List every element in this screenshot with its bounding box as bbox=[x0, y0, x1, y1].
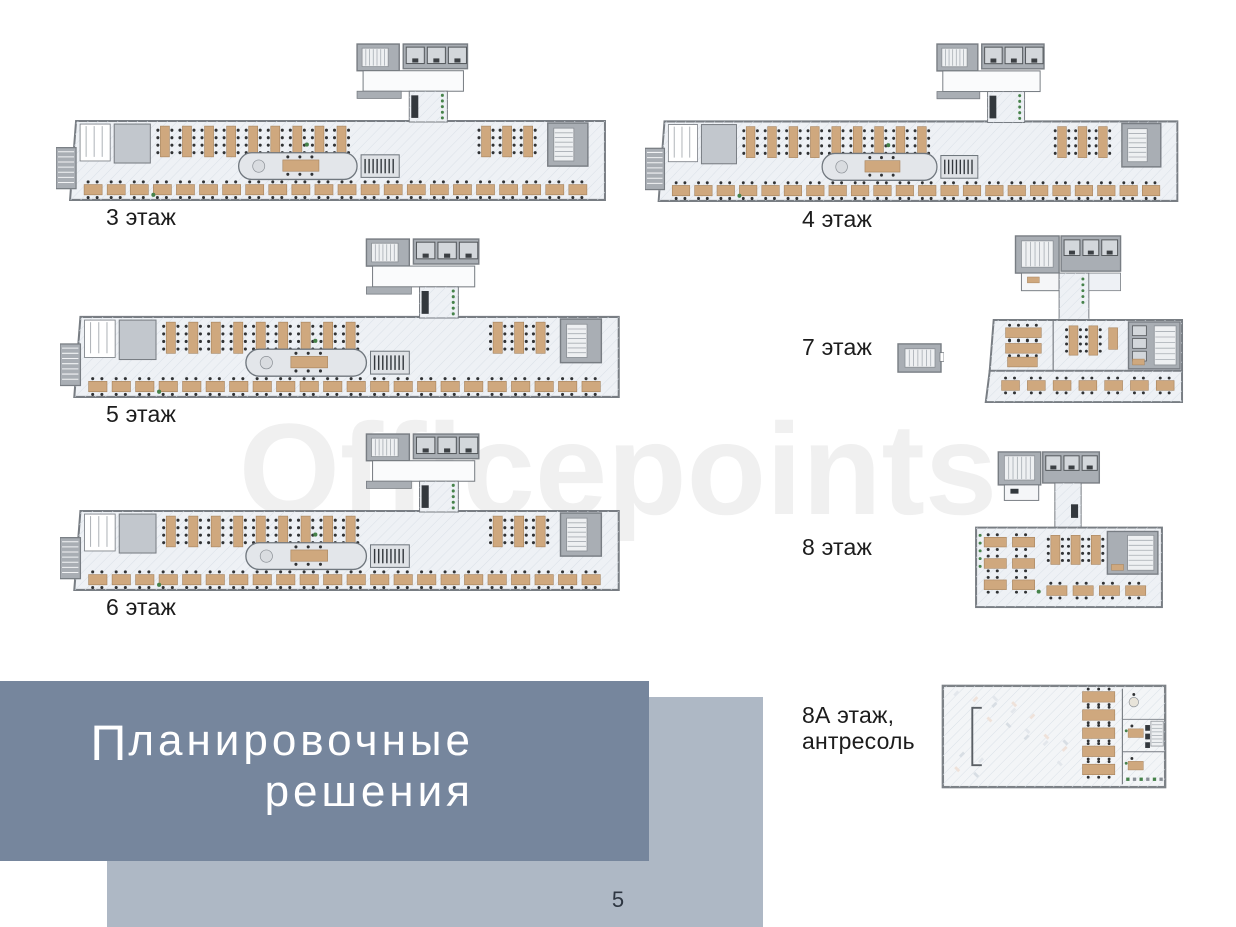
floor-label-8a-line2: антресоль bbox=[802, 728, 915, 754]
floor-plan-4-image bbox=[645, 42, 1190, 203]
floor-plan-8a bbox=[940, 683, 1168, 790]
floor-plan-6-image bbox=[60, 432, 632, 592]
title-box: Планировочные решения bbox=[0, 681, 649, 861]
floor-label-3: 3 этаж bbox=[106, 204, 176, 230]
floor-label-8a-line1: 8А этаж, bbox=[802, 702, 915, 728]
page-number: 5 bbox=[595, 887, 641, 913]
floor-plan-7 bbox=[958, 234, 1186, 405]
floor-plan-8 bbox=[968, 450, 1170, 610]
floor-plan-7-stair-annex bbox=[897, 340, 944, 376]
floor-label-7: 7 этаж bbox=[802, 334, 872, 360]
floor-label-8: 8 этаж bbox=[802, 534, 872, 560]
floor-plan-8a-image bbox=[940, 683, 1168, 790]
floor-plan-8-image bbox=[968, 450, 1170, 610]
title-initial: П bbox=[90, 715, 128, 771]
floor-plan-3 bbox=[56, 42, 618, 202]
slide-canvas: Officepoints 3 этаж 4 этаж 5 этаж 6 этаж… bbox=[0, 0, 1236, 927]
floor-label-6: 6 этаж bbox=[106, 594, 176, 620]
floor-label-5: 5 этаж bbox=[106, 401, 176, 427]
floor-plan-3-image bbox=[56, 42, 618, 202]
title-line1: Планировочные bbox=[70, 710, 474, 767]
title-line1-rest: ланировочные bbox=[128, 716, 474, 765]
stair-annex-image bbox=[897, 340, 944, 376]
floor-plan-5-image bbox=[60, 237, 632, 399]
floor-plan-7-image bbox=[958, 234, 1186, 405]
floor-label-8a: 8А этаж, антресоль bbox=[802, 702, 915, 754]
floor-plan-4 bbox=[645, 42, 1190, 203]
title-line2: решения bbox=[70, 767, 474, 817]
page-title: Планировочные решения bbox=[70, 710, 474, 817]
floor-label-4: 4 этаж bbox=[802, 206, 872, 232]
floor-plan-5 bbox=[60, 237, 632, 399]
floor-plan-6 bbox=[60, 432, 632, 592]
